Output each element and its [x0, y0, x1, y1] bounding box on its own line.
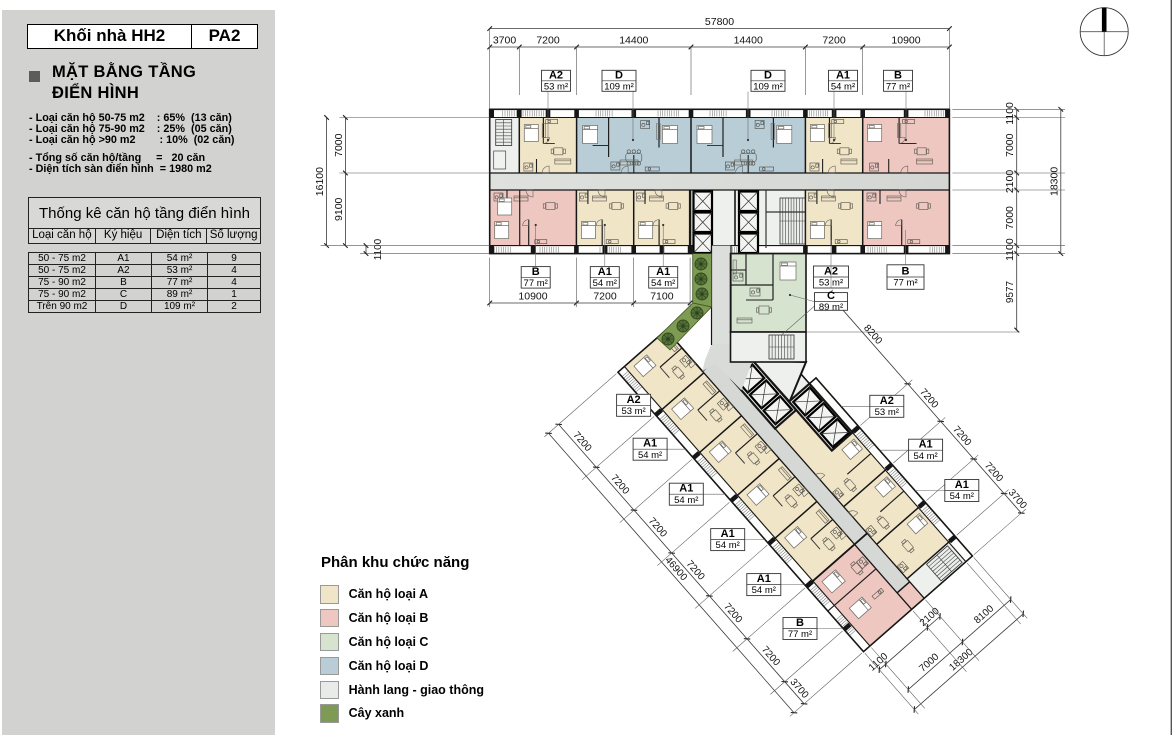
svg-text:77 m²: 77 m² — [886, 81, 910, 92]
svg-text:54 m²: 54 m² — [638, 450, 662, 461]
svg-text:7200: 7200 — [822, 35, 846, 47]
svg-text:54 m²: 54 m² — [593, 278, 617, 289]
svg-text:7000: 7000 — [333, 133, 345, 157]
svg-text:54 m²: 54 m² — [651, 278, 675, 289]
svg-text:16100: 16100 — [314, 167, 326, 196]
svg-text:1100: 1100 — [1004, 238, 1016, 261]
svg-text:77 m²: 77 m² — [893, 278, 917, 289]
svg-text:A2: A2 — [627, 394, 641, 406]
svg-text:A1: A1 — [656, 266, 670, 278]
svg-text:54 m²: 54 m² — [752, 585, 776, 596]
svg-text:9100: 9100 — [333, 197, 345, 221]
svg-text:53 m²: 53 m² — [621, 406, 645, 417]
svg-text:54 m²: 54 m² — [674, 495, 698, 506]
svg-text:B: B — [902, 266, 910, 278]
svg-text:A1: A1 — [757, 573, 771, 585]
svg-text:3700: 3700 — [493, 35, 517, 47]
svg-text:54 m²: 54 m² — [831, 81, 855, 92]
svg-text:D: D — [764, 69, 772, 81]
svg-text:46900: 46900 — [662, 555, 689, 583]
svg-text:1100: 1100 — [373, 238, 384, 260]
svg-text:9577: 9577 — [1005, 280, 1016, 303]
svg-text:A1: A1 — [721, 528, 735, 540]
svg-text:B: B — [796, 617, 804, 629]
svg-text:7200: 7200 — [593, 291, 617, 303]
svg-text:53 m²: 53 m² — [875, 407, 899, 418]
svg-text:A1: A1 — [836, 69, 850, 81]
svg-text:A2: A2 — [880, 395, 894, 407]
svg-text:A1: A1 — [679, 483, 693, 495]
svg-text:C: C — [827, 290, 835, 302]
svg-text:14400: 14400 — [619, 35, 648, 47]
svg-text:14400: 14400 — [734, 35, 763, 47]
svg-text:B: B — [532, 266, 540, 278]
svg-text:B: B — [894, 69, 902, 81]
svg-text:54 m²: 54 m² — [950, 491, 974, 502]
svg-text:1100: 1100 — [1004, 102, 1016, 125]
svg-text:89 m²: 89 m² — [819, 302, 843, 313]
svg-text:A1: A1 — [919, 439, 933, 451]
svg-text:7000: 7000 — [1004, 133, 1016, 157]
svg-text:18300: 18300 — [1048, 167, 1060, 196]
svg-text:109 m²: 109 m² — [753, 81, 783, 92]
svg-text:10900: 10900 — [891, 35, 920, 47]
svg-text:54 m²: 54 m² — [913, 451, 937, 462]
svg-text:77 m²: 77 m² — [788, 629, 812, 640]
svg-text:A1: A1 — [955, 479, 969, 491]
svg-text:7000: 7000 — [1004, 206, 1016, 230]
svg-text:D: D — [615, 69, 623, 81]
svg-text:57800: 57800 — [705, 16, 734, 28]
svg-text:7100: 7100 — [650, 291, 674, 303]
svg-text:53 m²: 53 m² — [544, 81, 568, 92]
svg-text:A2: A2 — [549, 69, 563, 81]
svg-text:A1: A1 — [643, 438, 657, 450]
svg-text:10900: 10900 — [518, 291, 547, 303]
svg-text:54 m²: 54 m² — [716, 540, 740, 551]
svg-text:7200: 7200 — [536, 35, 560, 47]
svg-text:109 m²: 109 m² — [604, 81, 634, 92]
svg-text:77 m²: 77 m² — [524, 278, 548, 289]
svg-text:A1: A1 — [598, 266, 612, 278]
svg-text:18300: 18300 — [947, 647, 975, 674]
